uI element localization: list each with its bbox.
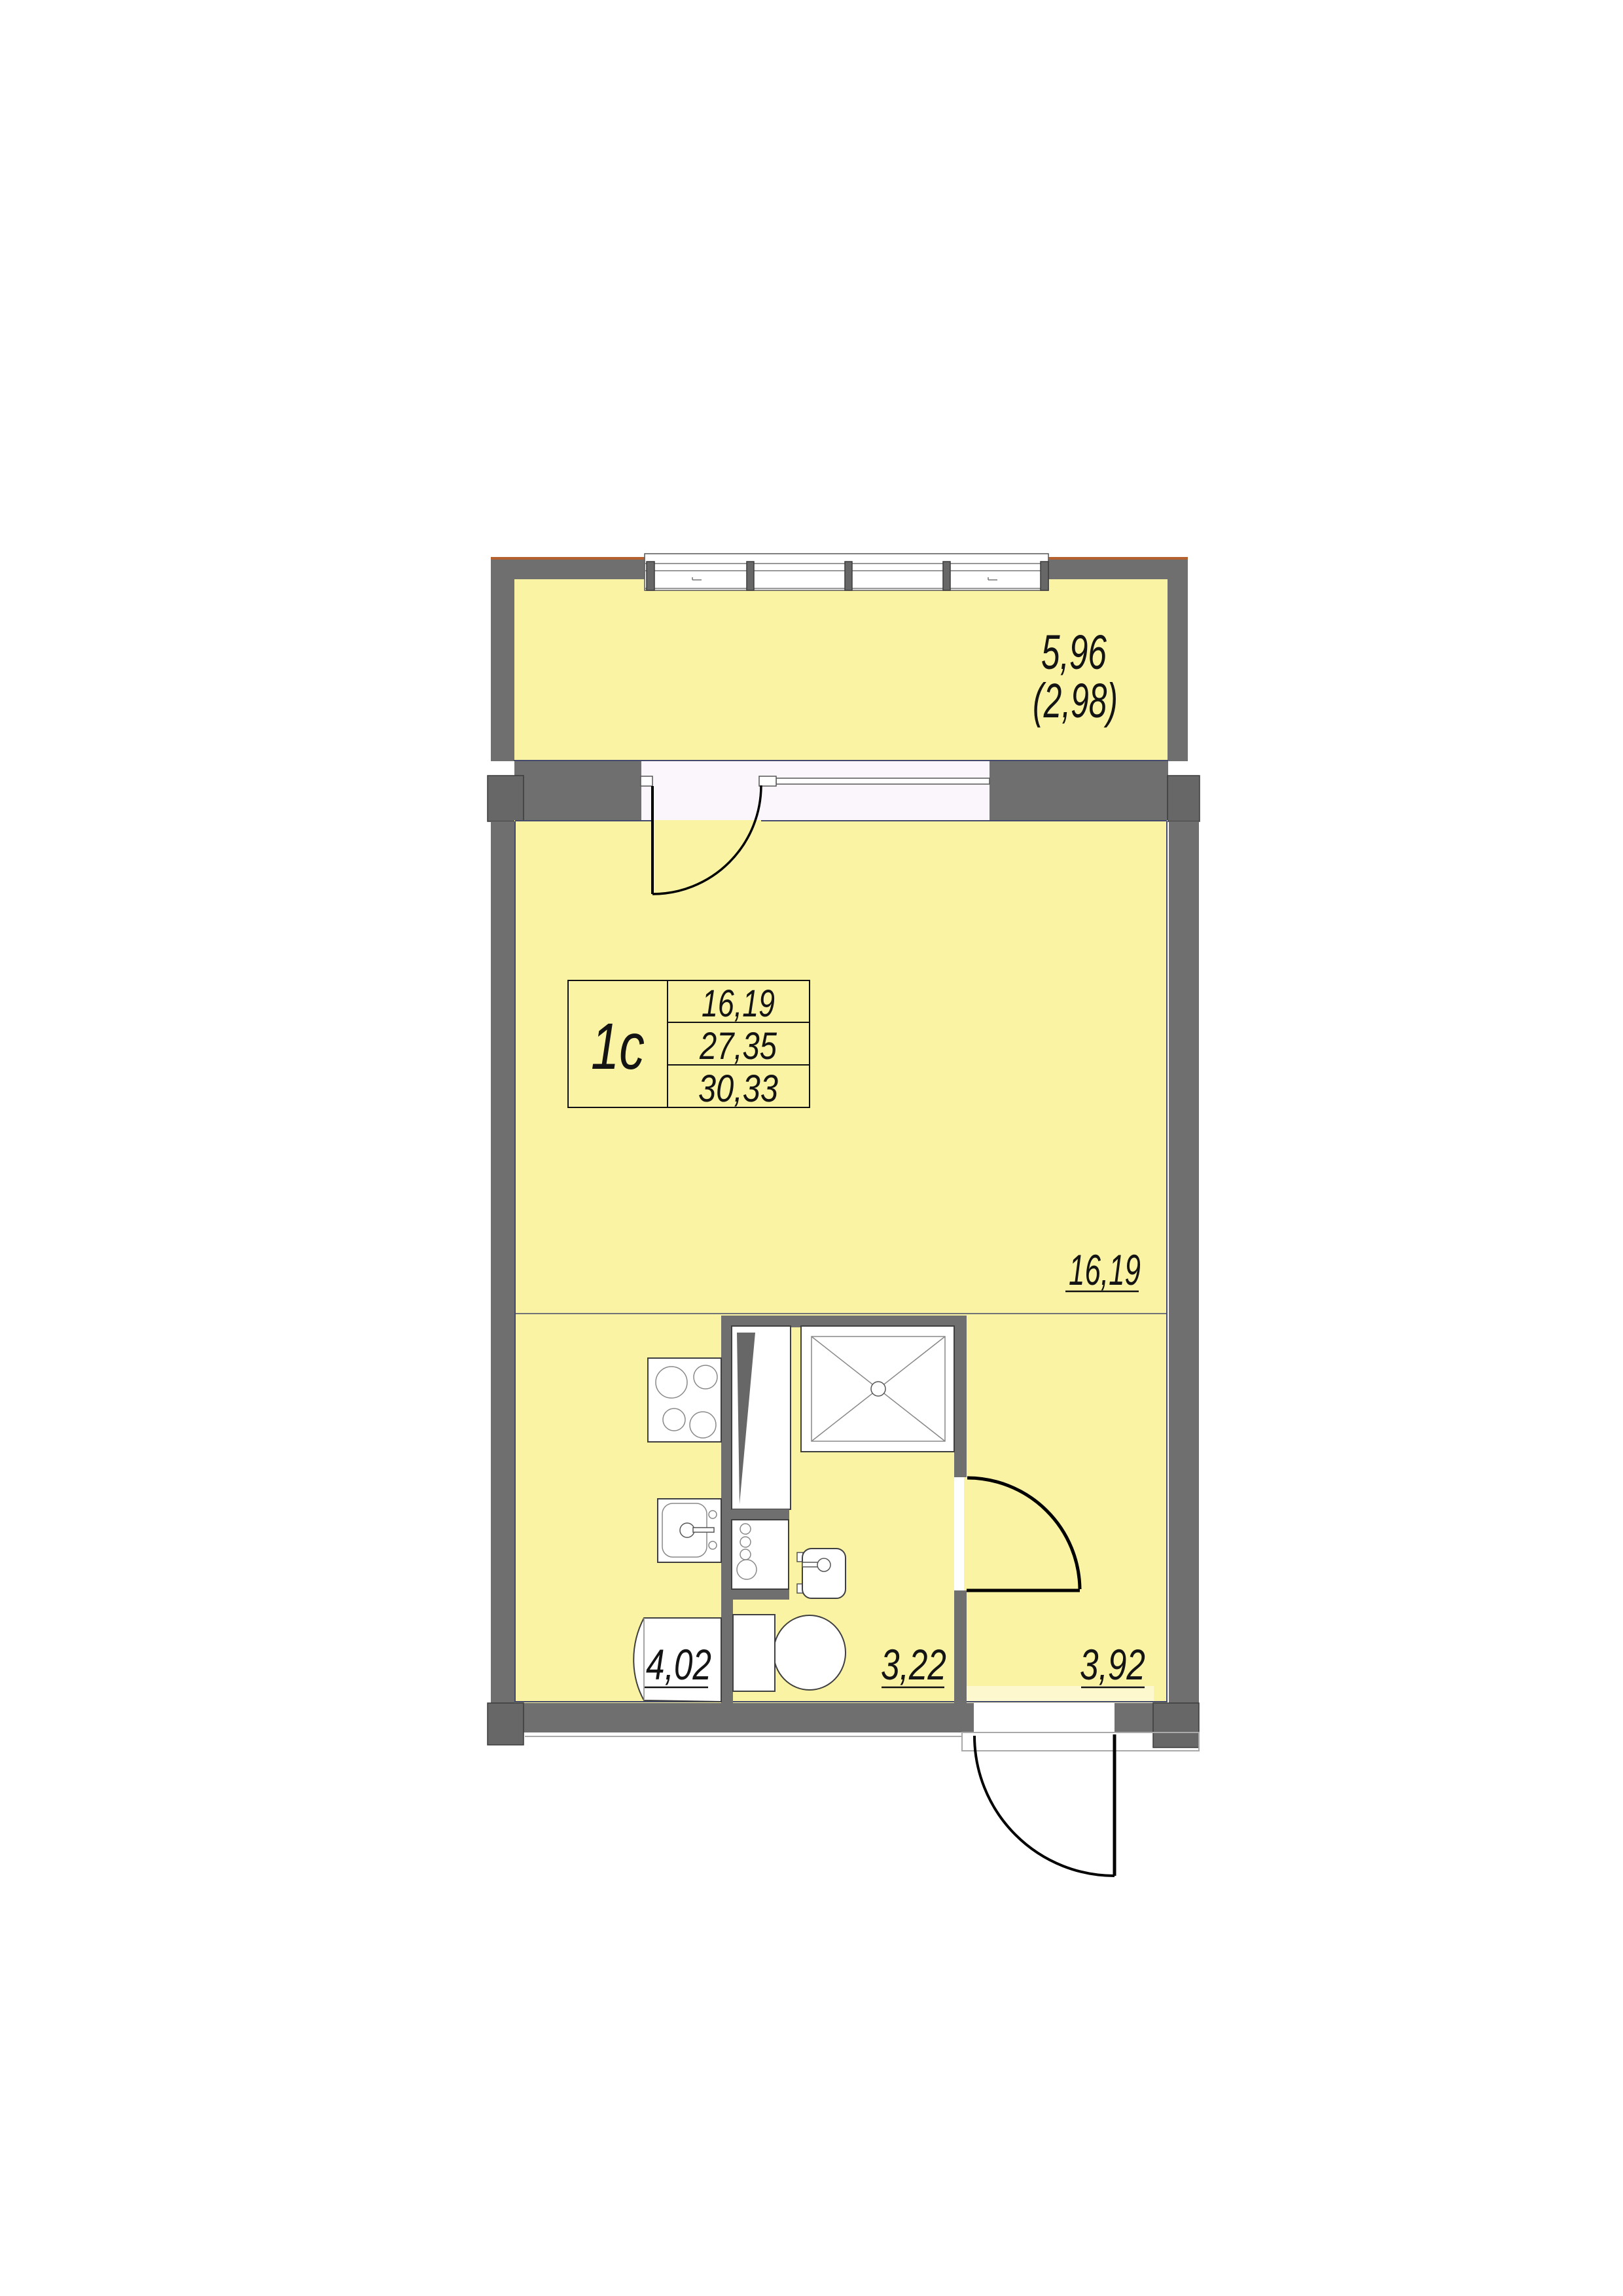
shower bbox=[801, 1326, 954, 1452]
washer-niche-wall-bottom bbox=[732, 1589, 789, 1600]
pilaster-bottom-right bbox=[1153, 1703, 1199, 1748]
divider-wall-right bbox=[990, 761, 1168, 820]
floor-plan-page: 1с 16,19 27,35 30,33 5,96 (2,98) 16,19 4… bbox=[0, 0, 1623, 2296]
kitchen-area-label: 4,02 bbox=[646, 1640, 711, 1689]
outer-wall-right bbox=[1169, 821, 1199, 1705]
window-mullion-2 bbox=[747, 562, 754, 590]
vent-shaft bbox=[732, 1326, 791, 1509]
floor-plan-drawing: 1с 16,19 27,35 30,33 5,96 (2,98) 16,19 4… bbox=[0, 0, 1623, 2296]
balcony-area-label: 5,96 bbox=[1041, 625, 1107, 679]
outer-wall-bottom-left bbox=[491, 1703, 974, 1732]
stove bbox=[648, 1358, 721, 1442]
unit-type-label: 1с bbox=[591, 1010, 645, 1083]
hallway-area-label: 3,92 bbox=[1080, 1640, 1145, 1689]
bathroom-sink-faucet bbox=[817, 1558, 830, 1571]
window-mullion-3 bbox=[845, 562, 852, 590]
pilaster-bottom-left bbox=[488, 1703, 524, 1745]
washer-niche-wall-top bbox=[732, 1509, 789, 1520]
living-room-area-label: 16,19 bbox=[1069, 1246, 1141, 1294]
kitchen-sink-faucet bbox=[680, 1523, 694, 1537]
kitchen-sink bbox=[658, 1499, 721, 1562]
room-window-glazing bbox=[776, 778, 990, 784]
balcony-window-band bbox=[645, 554, 1048, 590]
washing-machine bbox=[732, 1520, 789, 1589]
entrance-door-swing bbox=[974, 1734, 1115, 1876]
balcony-wall-left bbox=[491, 560, 514, 761]
outer-wall-left bbox=[491, 821, 514, 1703]
window-mullion-4 bbox=[943, 562, 950, 590]
bathroom-area-label: 3,22 bbox=[881, 1640, 946, 1689]
pilaster-left bbox=[488, 776, 524, 821]
window-mullion-5 bbox=[1041, 562, 1048, 590]
balcony-area-reduced-label: (2,98) bbox=[1033, 673, 1118, 728]
balcony-door-jamb-left bbox=[641, 776, 652, 786]
living-area-value: 16,19 bbox=[702, 982, 775, 1025]
bathroom-sink-basin bbox=[802, 1549, 846, 1598]
pilaster-right bbox=[1168, 776, 1200, 821]
shower-drain bbox=[871, 1382, 885, 1396]
total-area-value: 30,33 bbox=[698, 1067, 778, 1110]
bathroom-door-opening bbox=[954, 1477, 964, 1590]
balcony-wall-top-left bbox=[491, 560, 645, 579]
balcony-divider-wall bbox=[488, 761, 1200, 821]
bathroom-wall-right-upper bbox=[954, 1327, 967, 1477]
bathroom-wall-right-lower bbox=[954, 1590, 967, 1703]
divider-wall-cavity bbox=[641, 761, 990, 820]
toilet bbox=[733, 1615, 846, 1691]
stove-body bbox=[648, 1358, 721, 1442]
window-mullion-1 bbox=[647, 562, 654, 590]
balcony-wall-right bbox=[1168, 560, 1188, 761]
toilet-bowl bbox=[774, 1615, 846, 1690]
divider-wall-left bbox=[514, 761, 641, 820]
balcony-door-jamb-right bbox=[759, 776, 776, 786]
toilet-tank bbox=[733, 1615, 775, 1691]
entrance-opening bbox=[974, 1703, 1115, 1732]
bathroom-sink bbox=[797, 1549, 846, 1598]
entrance-door-arc bbox=[974, 1736, 1115, 1876]
floor-area-value: 27,35 bbox=[699, 1025, 777, 1067]
balcony-wall-top-right bbox=[1047, 560, 1188, 579]
kitchen-sink-spout bbox=[693, 1528, 714, 1532]
